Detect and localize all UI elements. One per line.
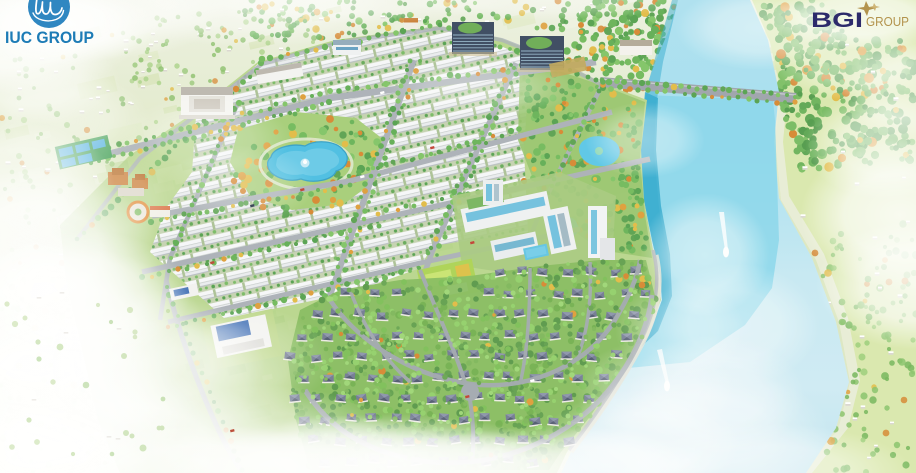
svg-text:BGI: BGI [811,9,863,32]
svg-text:GROUP: GROUP [866,15,909,29]
svg-text:IUC GROUP: IUC GROUP [5,29,94,47]
